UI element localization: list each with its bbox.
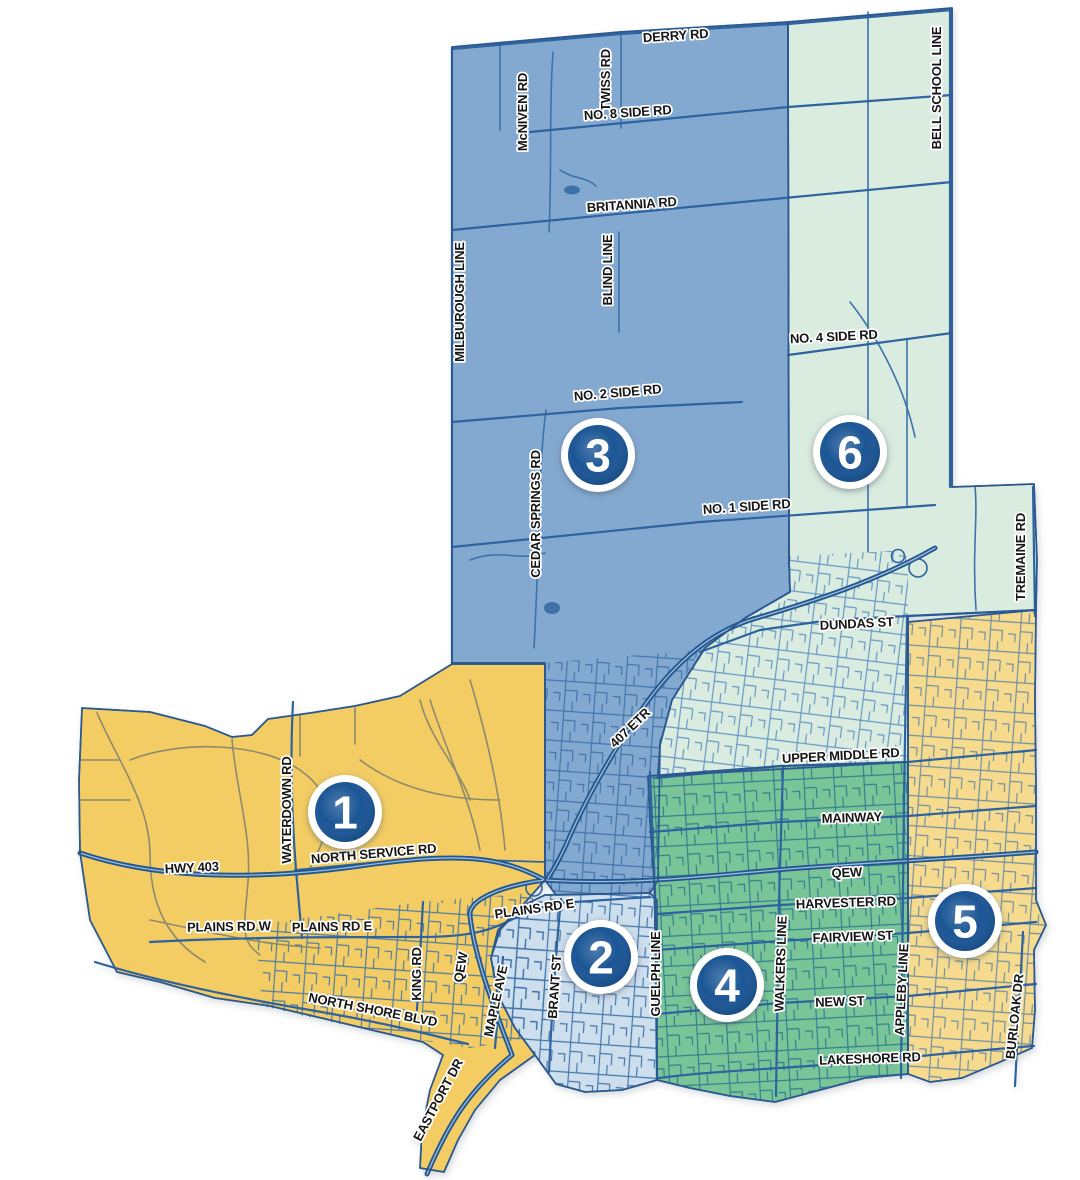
road-label-tremaine-rd: TREMAINE RD bbox=[1013, 513, 1028, 601]
svg-text:5: 5 bbox=[952, 896, 978, 948]
road-label-mainway: MAINWAY bbox=[821, 809, 882, 826]
road-label-plains-rd-e: PLAINS RD E bbox=[292, 918, 373, 934]
ward-2-badge: 2 bbox=[564, 920, 638, 994]
road-label-waterdown-rd: WATERDOWN RD bbox=[279, 756, 294, 863]
road-label-mcniven-rd: McNIVEN RD bbox=[515, 73, 530, 151]
road-label-qew: QEW bbox=[831, 864, 863, 881]
road-label-plains-rd-w: PLAINS RD W bbox=[187, 918, 272, 934]
ward-4-badge: 4 bbox=[690, 948, 764, 1022]
road-label-fairview-st: FAIRVIEW ST bbox=[812, 928, 893, 946]
svg-text:3: 3 bbox=[585, 430, 611, 482]
road-label-bell-school-line: BELL SCHOOL LINE bbox=[929, 26, 944, 149]
svg-text:2: 2 bbox=[588, 932, 614, 984]
svg-text:6: 6 bbox=[837, 427, 863, 479]
ward-6-badge: 6 bbox=[813, 415, 887, 489]
road-label-new-st: NEW ST bbox=[815, 993, 865, 1010]
road-label-milburough-line: MILBUROUGH LINE bbox=[452, 242, 467, 362]
road-label-cedar-springs-rd: CEDAR SPRINGS RD bbox=[528, 450, 543, 578]
svg-text:4: 4 bbox=[714, 960, 740, 1012]
svg-text:1: 1 bbox=[332, 787, 358, 839]
road-label-twiss-rd: TWISS RD bbox=[598, 49, 613, 111]
road-label-guelph-line: GUELPH LINE bbox=[648, 931, 663, 1017]
road-label-hwy-403: HWY 403 bbox=[164, 859, 219, 877]
ward-3-badge: 3 bbox=[561, 418, 635, 492]
ward-5-badge: 5 bbox=[928, 884, 1002, 958]
ward-map-svg: DERRY RD McNIVEN RD TWISS RD NO. 8 SIDE … bbox=[0, 0, 1080, 1180]
road-label-king-rd: KING RD bbox=[409, 947, 424, 1001]
road-label-blind-line: BLIND LINE bbox=[600, 234, 615, 305]
ward-map: DERRY RD McNIVEN RD TWISS RD NO. 8 SIDE … bbox=[0, 0, 1080, 1180]
ward-1-badge: 1 bbox=[308, 775, 382, 849]
